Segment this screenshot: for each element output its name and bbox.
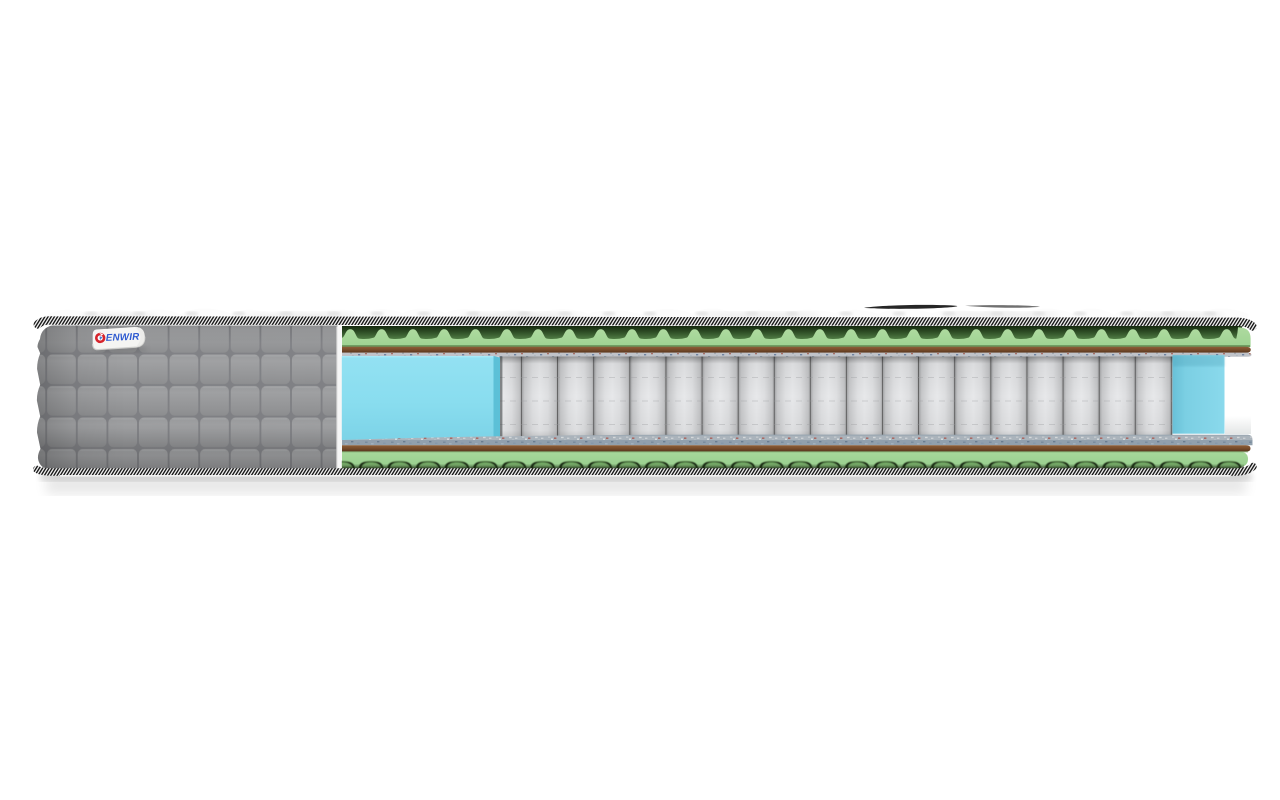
svg-text:ENWIR: ENWIR: [106, 332, 141, 344]
